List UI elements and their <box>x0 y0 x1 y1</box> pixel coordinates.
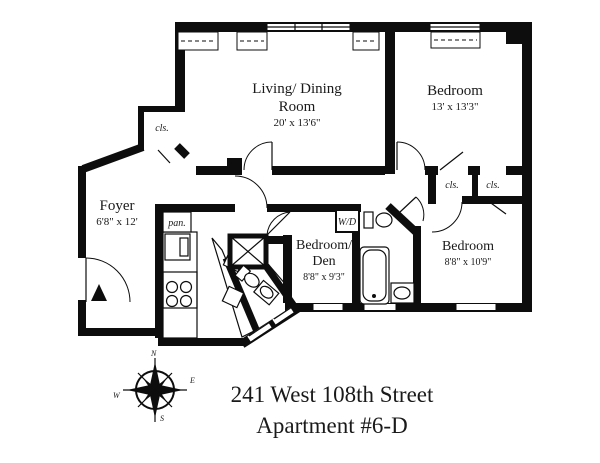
living-room-dims: 20' x 13'6" <box>274 117 321 129</box>
compass-w: W <box>113 391 121 400</box>
bathtub <box>360 247 389 304</box>
foyer-dims: 6'8" x 12' <box>96 216 137 228</box>
living-door-arc <box>244 142 272 170</box>
shaft <box>230 236 266 267</box>
title-block: 241 West 108th Street Apartment #6-D <box>231 382 434 438</box>
bedroom1-door-arc <box>397 142 425 170</box>
living-room-label2: Room <box>279 99 316 115</box>
closet-label: cls. <box>155 123 169 134</box>
bedroom-top-label: Bedroom <box>427 83 483 99</box>
compass-rose: N E S W <box>113 349 195 423</box>
pantry-label: pan. <box>167 218 186 229</box>
closet-label: cls. <box>486 180 500 191</box>
foyer-label: Foyer <box>100 198 135 214</box>
bedroom-right-dims: 8'8" x 10'9" <box>445 257 492 268</box>
compass-s: S <box>160 414 164 423</box>
walls <box>78 22 532 346</box>
radiator <box>178 32 480 50</box>
bedroom-den-label2: Den <box>312 254 335 269</box>
window <box>313 304 343 311</box>
window <box>456 304 496 311</box>
closet-label: cls. <box>445 180 459 191</box>
entry-door-arc <box>86 258 130 302</box>
bedroom-right-label: Bedroom <box>442 239 494 254</box>
bedroom-top-dims: 13' x 13'3" <box>432 101 479 113</box>
bedroom2-door-arc <box>432 202 462 232</box>
living-room-label: Living/ Dining <box>252 81 342 97</box>
apartment-subtitle: Apartment #6-D <box>256 413 407 438</box>
washer-dryer-label: W/D <box>338 217 357 228</box>
kitchen-door-arc <box>235 176 267 208</box>
floor-plan: Living/ Dining Room 20' x 13'6" Bedroom … <box>0 0 600 463</box>
bedroom-den-dims: 8'8" x 9'3" <box>303 272 345 283</box>
address-title: 241 West 108th Street <box>231 382 434 407</box>
closet-door-leaf <box>440 152 463 170</box>
bathroom-door-leaf <box>400 197 416 212</box>
closet-door-leaf <box>158 150 170 163</box>
compass-n: N <box>150 349 157 358</box>
bedroom-den-label: Bedroom/ <box>296 238 352 253</box>
entrance-arrow <box>91 284 107 301</box>
floor-plan-page: Living/ Dining Room 20' x 13'6" Bedroom … <box>0 0 600 463</box>
bathroom-sink <box>391 283 414 303</box>
compass-e: E <box>189 376 195 385</box>
toilet <box>364 212 392 228</box>
